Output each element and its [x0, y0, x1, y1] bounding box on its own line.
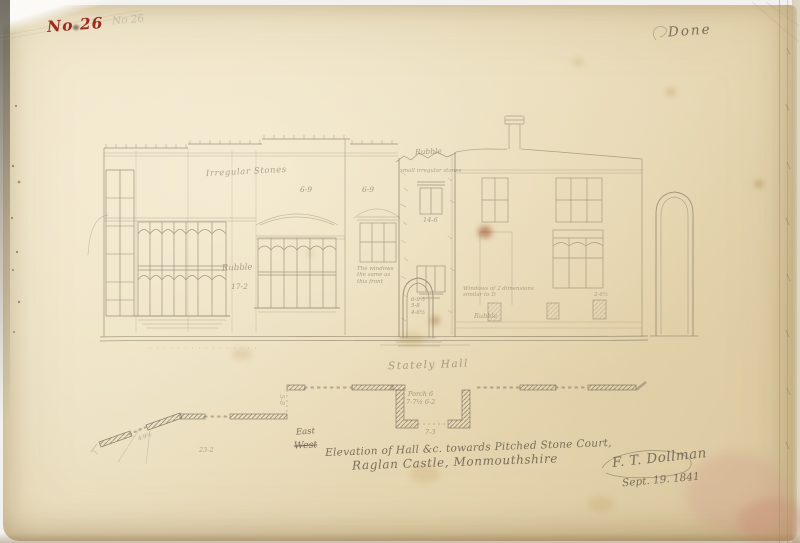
done-note: Done: [668, 22, 713, 41]
label-rubble-wall: Rubble: [222, 263, 253, 274]
scanned-drawing-page: No 26 No 26 Done Irregular Stones 6-9 6-…: [0, 0, 800, 543]
tower-label-rubble: Rubble: [415, 148, 442, 158]
signature-flourish: [602, 26, 691, 477]
tower-dim-window: 14-6: [423, 217, 438, 224]
dim-plan-jog: 5-8: [278, 395, 285, 405]
caption-direction-west-struck: West: [294, 440, 318, 452]
dim-bay-right: 6-9: [362, 186, 374, 195]
note-bay: The windows the same as this front: [357, 266, 394, 285]
right-block-rubble: Rubble: [474, 313, 497, 320]
elevation-drawing: [88, 116, 699, 348]
dim-porch: 7-3: [425, 429, 435, 436]
porch-label-2: 7-7½ 6-2: [406, 399, 435, 406]
dim-bay-left: 6-9: [300, 186, 312, 195]
dim-wall-height: 17-2: [231, 283, 248, 292]
right-block-note: Windows of 2 dimensions similar to D: [463, 286, 534, 299]
left-edge-specks: [11, 105, 21, 333]
door-dimensions: 6-9½ 5-8 4-6½: [411, 297, 425, 316]
dim-niche: 2-6½: [594, 292, 608, 298]
page-number-red: No 26: [46, 14, 104, 36]
tower-note-small-stones: small irregular stones: [400, 168, 461, 174]
caption-direction-east: East: [296, 427, 316, 438]
dim-plan-left: 23-2: [199, 447, 214, 454]
